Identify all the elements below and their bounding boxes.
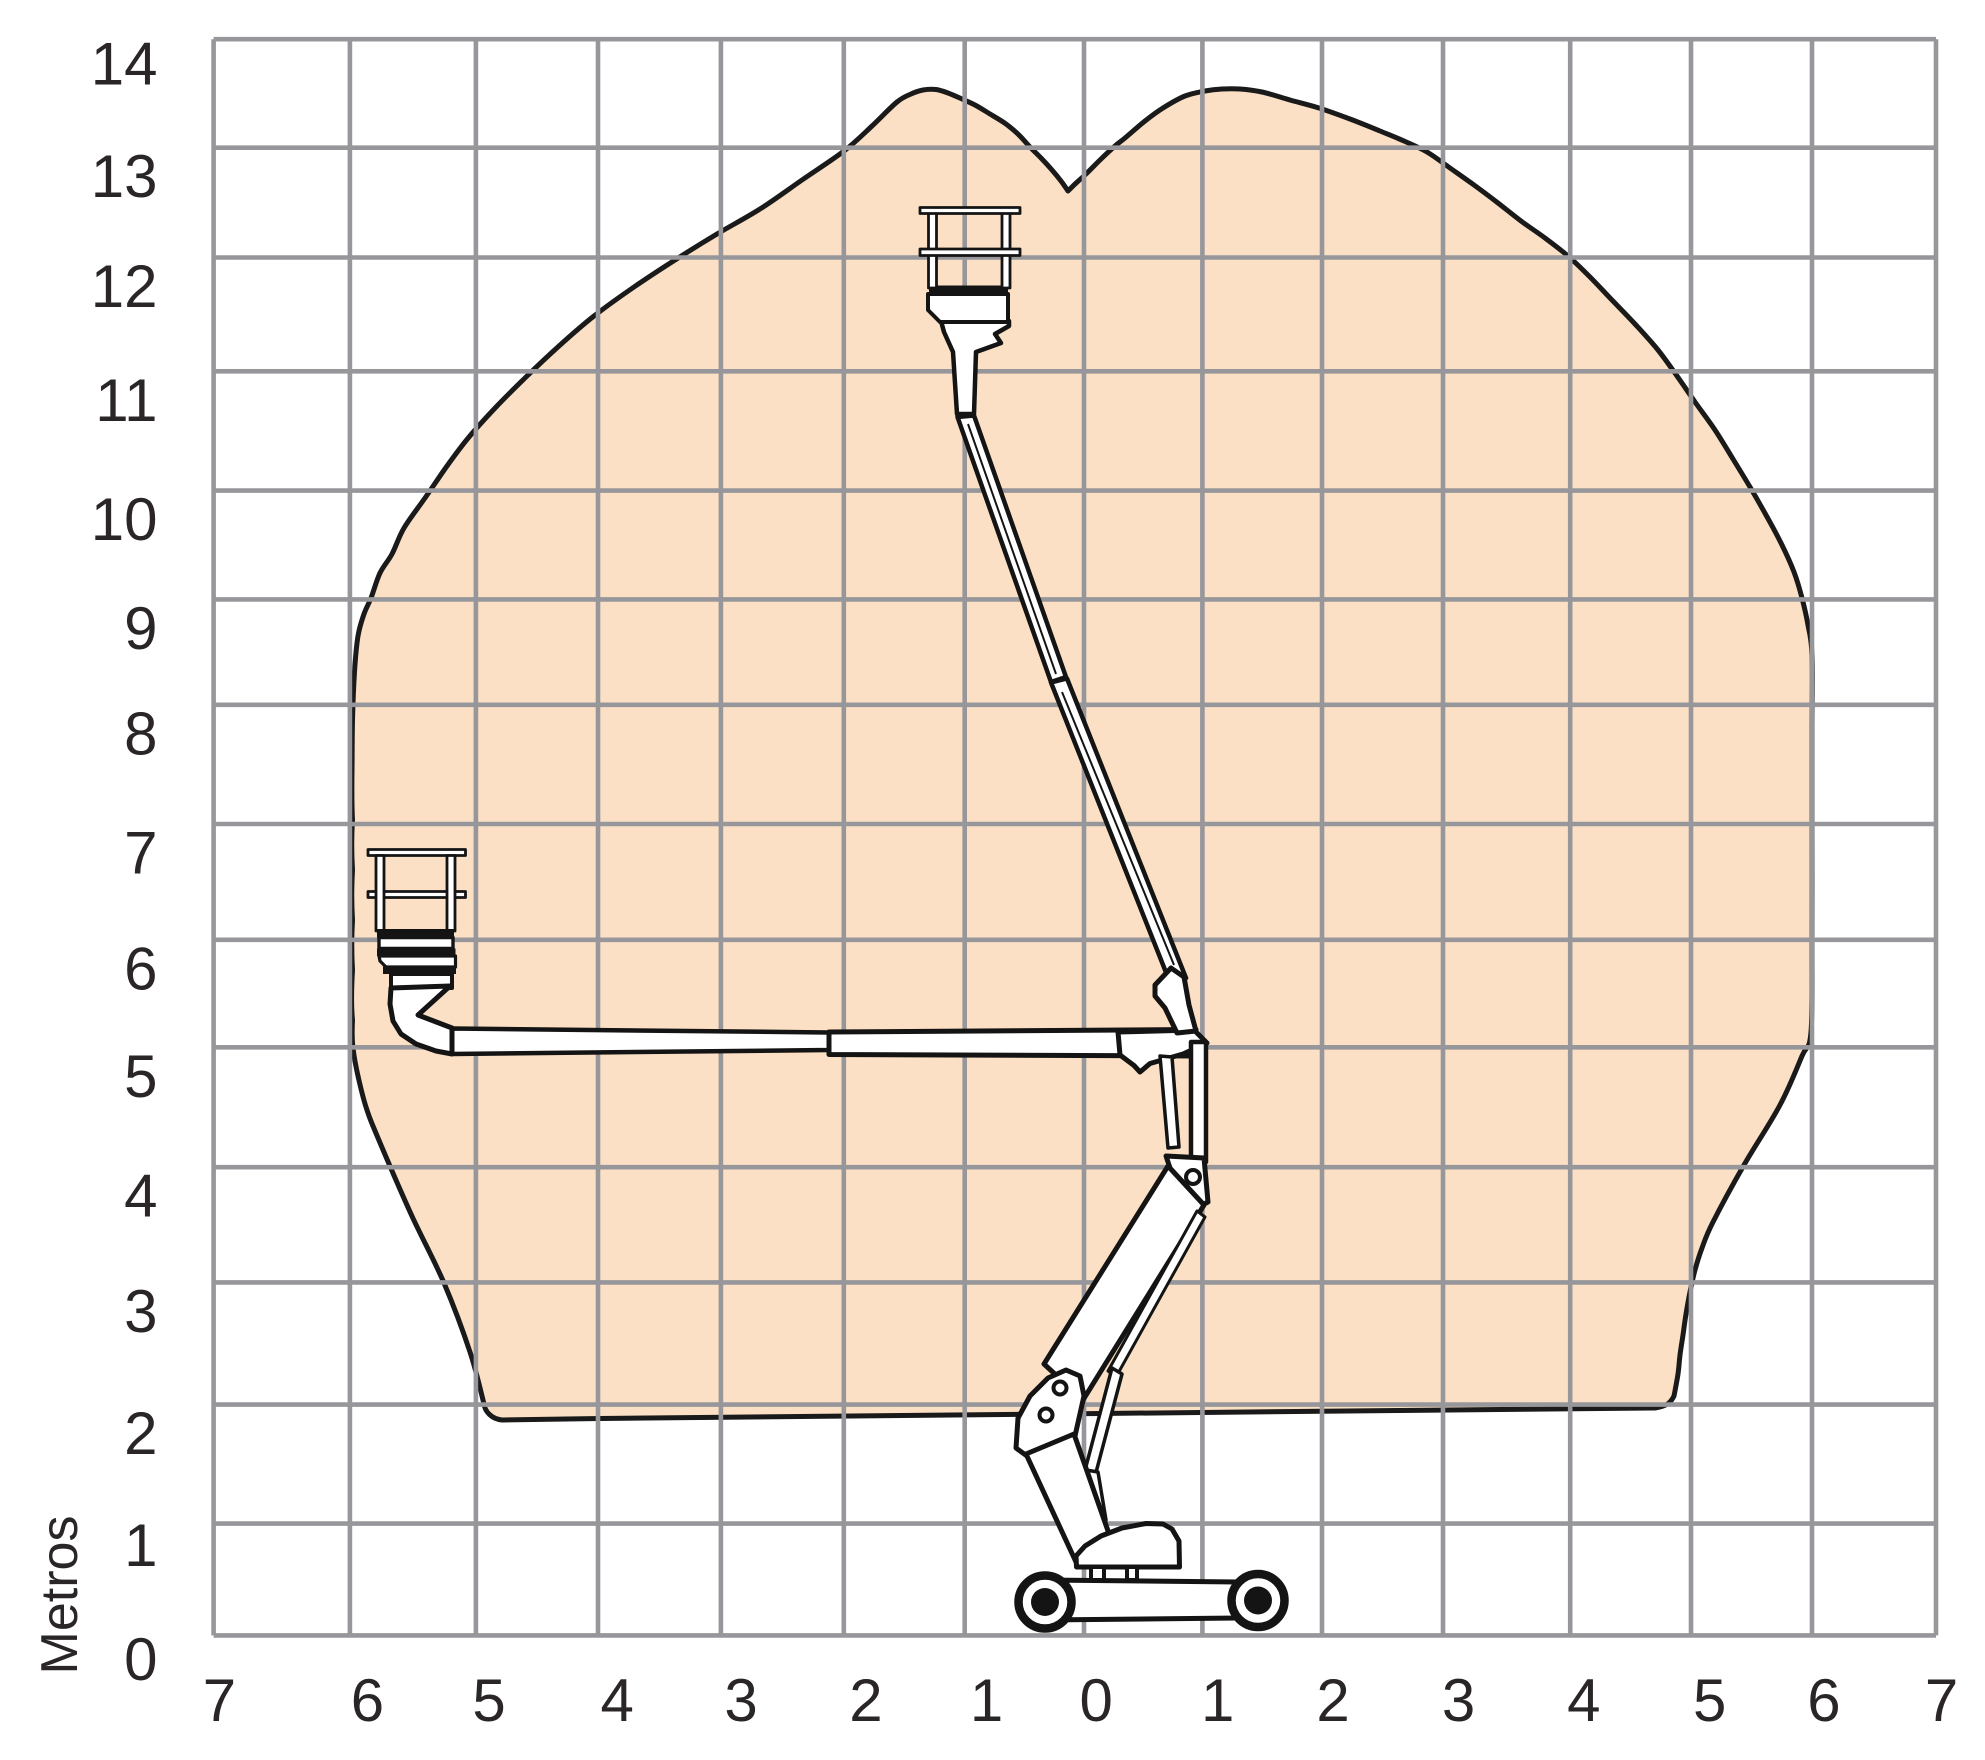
svg-text:9: 9 bbox=[124, 595, 157, 662]
svg-text:1: 1 bbox=[970, 1667, 1003, 1734]
svg-text:6: 6 bbox=[124, 935, 157, 1002]
svg-text:10: 10 bbox=[91, 486, 158, 553]
svg-text:2: 2 bbox=[1316, 1667, 1349, 1734]
svg-text:12: 12 bbox=[91, 253, 158, 320]
svg-text:5: 5 bbox=[1693, 1667, 1726, 1734]
svg-text:4: 4 bbox=[124, 1163, 157, 1230]
svg-text:4: 4 bbox=[1567, 1667, 1600, 1734]
svg-text:1: 1 bbox=[124, 1512, 157, 1579]
svg-text:2: 2 bbox=[849, 1667, 882, 1734]
svg-text:0: 0 bbox=[1080, 1667, 1113, 1734]
svg-text:0: 0 bbox=[124, 1626, 157, 1693]
svg-text:5: 5 bbox=[124, 1043, 157, 1110]
svg-text:7: 7 bbox=[203, 1667, 236, 1734]
svg-text:7: 7 bbox=[1925, 1667, 1958, 1734]
svg-text:6: 6 bbox=[351, 1667, 384, 1734]
svg-text:8: 8 bbox=[124, 700, 157, 767]
svg-text:14: 14 bbox=[91, 31, 158, 98]
svg-text:11: 11 bbox=[95, 367, 157, 434]
svg-text:Metros: Metros bbox=[31, 1516, 89, 1675]
svg-text:13: 13 bbox=[91, 143, 158, 210]
svg-text:3: 3 bbox=[124, 1278, 157, 1345]
svg-text:2: 2 bbox=[124, 1400, 157, 1467]
svg-text:7: 7 bbox=[124, 820, 157, 887]
svg-text:6: 6 bbox=[1807, 1667, 1840, 1734]
svg-text:3: 3 bbox=[724, 1667, 757, 1734]
svg-text:5: 5 bbox=[472, 1667, 505, 1734]
svg-text:4: 4 bbox=[601, 1667, 634, 1734]
svg-text:1: 1 bbox=[1201, 1667, 1234, 1734]
svg-text:3: 3 bbox=[1442, 1667, 1475, 1734]
